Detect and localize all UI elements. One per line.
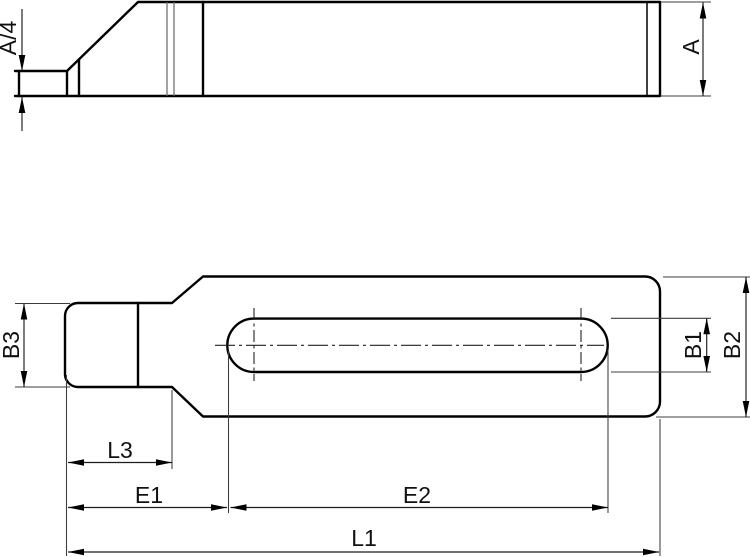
arrowhead-left-icon xyxy=(68,549,84,556)
side-view: A/4 A xyxy=(0,2,711,131)
arrowhead-right-icon xyxy=(592,504,608,511)
dim-label-l3: L3 xyxy=(107,437,133,463)
dimension-l1: L1 xyxy=(68,525,659,555)
dimension-e2: E2 xyxy=(231,482,609,511)
arrowhead-down-icon xyxy=(700,80,707,96)
dimension-l3: L3 xyxy=(68,437,172,466)
dim-label-e1: E1 xyxy=(135,482,163,508)
technical-drawing: A/4 A B3 xyxy=(0,0,750,557)
dimension-a4: A/4 xyxy=(0,9,25,131)
dim-label-b1: B1 xyxy=(680,331,706,359)
dimension-a: A xyxy=(661,2,711,96)
dim-label-a4: A/4 xyxy=(0,21,21,56)
dim-label-a: A xyxy=(678,39,704,55)
arrowhead-right-icon xyxy=(156,459,172,466)
side-view-outline xyxy=(15,2,660,96)
drawing-canvas: A/4 A B3 xyxy=(0,0,750,557)
dimension-e1: E1 xyxy=(68,482,227,511)
arrowhead-down-icon xyxy=(743,401,750,417)
dim-label-b2: B2 xyxy=(719,331,745,359)
top-view: B3 B1 B2 L3 xyxy=(0,277,750,557)
arrowhead-down-icon xyxy=(19,55,26,71)
arrowhead-left-icon xyxy=(231,504,247,511)
arrowhead-right-icon xyxy=(643,549,659,556)
arrowhead-left-icon xyxy=(68,459,84,466)
arrowhead-right-icon xyxy=(211,504,227,511)
arrowhead-left-icon xyxy=(68,504,84,511)
arrowhead-down-icon xyxy=(21,371,28,387)
dim-label-l1: L1 xyxy=(351,525,377,551)
arrowhead-up-icon xyxy=(21,304,28,320)
arrowhead-up-icon xyxy=(19,97,26,113)
dim-label-b3: B3 xyxy=(0,331,24,359)
top-view-outline xyxy=(65,277,660,417)
arrowhead-up-icon xyxy=(743,277,750,293)
arrowhead-up-icon xyxy=(700,3,707,19)
dim-label-e2: E2 xyxy=(403,482,431,508)
dimension-b3: B3 xyxy=(0,304,70,388)
